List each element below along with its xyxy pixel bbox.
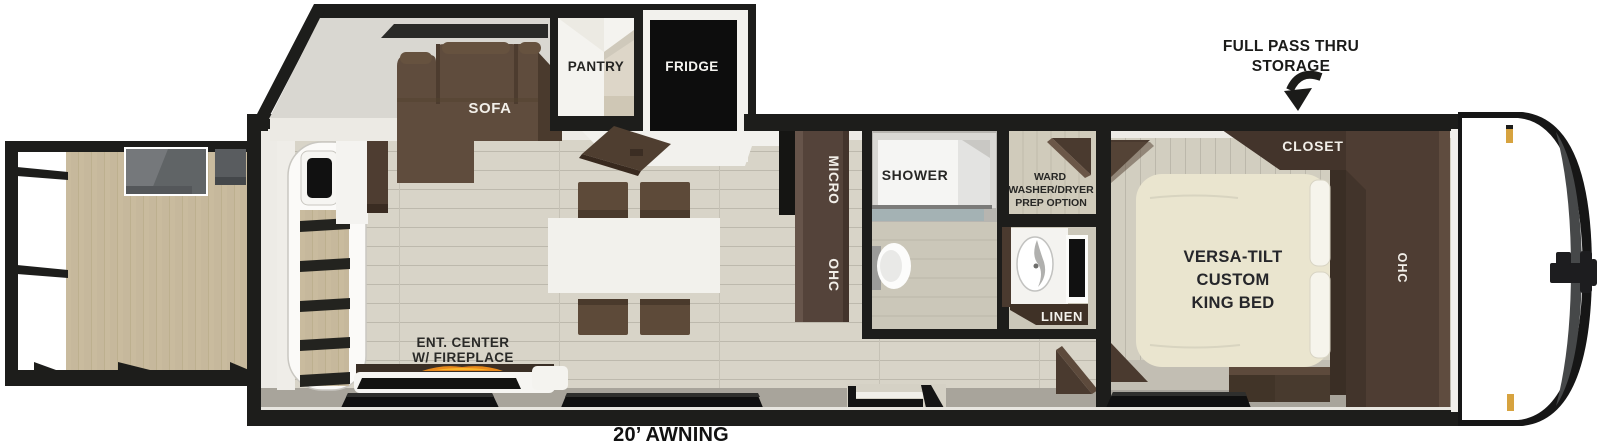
svg-text:20’ AWNING: 20’ AWNING (613, 424, 729, 444)
svg-text:SHOWER: SHOWER (882, 167, 949, 183)
svg-text:FRIDGE: FRIDGE (665, 59, 718, 74)
svg-text:WARD: WARD (1034, 171, 1066, 183)
svg-text:CUSTOM: CUSTOM (1197, 271, 1270, 289)
svg-text:OHC: OHC (1395, 253, 1409, 284)
svg-text:VERSA-TILT: VERSA-TILT (1184, 248, 1283, 266)
svg-text:ENT. CENTER: ENT. CENTER (417, 335, 510, 350)
svg-text:LINEN: LINEN (1041, 309, 1083, 324)
svg-text:OHC: OHC (826, 258, 842, 292)
svg-text:WASHER/DRYER: WASHER/DRYER (1008, 184, 1094, 196)
svg-text:PREP OPTION: PREP OPTION (1015, 197, 1087, 209)
svg-text:CLOSET: CLOSET (1282, 138, 1344, 154)
svg-text:PANTRY: PANTRY (568, 59, 624, 74)
svg-text:SOFA: SOFA (468, 100, 511, 117)
svg-text:KING BED: KING BED (1191, 294, 1274, 312)
svg-text:W/ FIREPLACE: W/ FIREPLACE (412, 350, 514, 365)
svg-text:FULL PASS THRU: FULL PASS THRU (1223, 38, 1359, 55)
svg-text:MICRO: MICRO (826, 156, 841, 205)
